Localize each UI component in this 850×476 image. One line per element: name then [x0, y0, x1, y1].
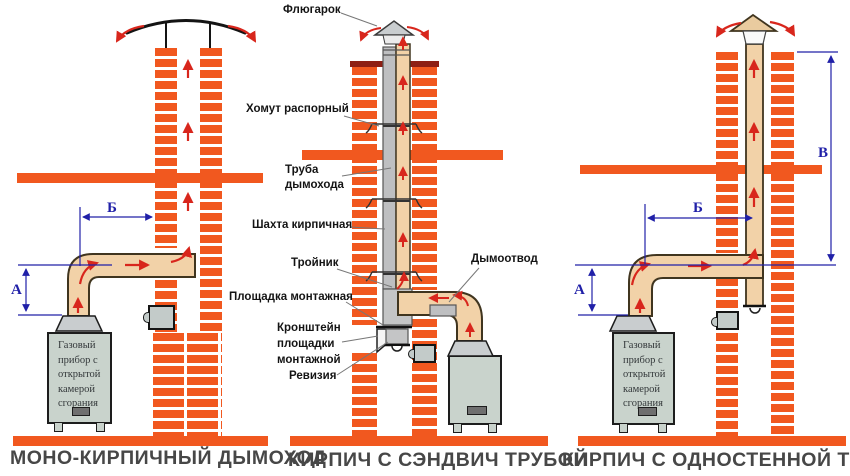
right-diagram-linework — [575, 15, 838, 331]
condensate-drain — [392, 346, 402, 351]
caption-right: КИРПИЧ С ОДНОСТЕННОЙ ТРУБОЙ — [562, 449, 850, 472]
dim-label-v-right: В — [818, 145, 828, 162]
boiler-flue-pipe — [68, 254, 195, 316]
label-truba: Труба дымохода — [285, 163, 344, 193]
boiler-flue-collar — [56, 316, 102, 331]
label-troynik: Тройник — [291, 256, 338, 271]
middle-diagram-linework — [337, 13, 493, 375]
label-ploshchadka: Площадка монтажная — [229, 290, 353, 305]
label-fluegarok: Флюгарок — [283, 3, 341, 18]
boiler-flue-collar — [610, 316, 656, 331]
label-khomut: Хомут распорный — [246, 102, 349, 117]
boiler-flue-collar — [448, 341, 493, 356]
label-kronshtein: Кронштейн площадки монтажной — [277, 320, 341, 368]
label-dymootvod: Дымоотвод — [471, 252, 538, 267]
dim-label-b-left: Б — [107, 200, 117, 217]
cowl-neck — [743, 31, 766, 44]
chimney-arc-cap-icon — [127, 21, 245, 49]
dim-label-a-left: А — [11, 282, 22, 299]
left-diagram-linework — [18, 21, 255, 332]
duct-connector — [430, 305, 456, 316]
revision-stub — [386, 329, 408, 344]
label-shahta: Шахта кирпичная — [252, 218, 352, 233]
caption-left: МОНО-КИРПИЧНЫЙ ДЫМОХОД — [10, 447, 270, 470]
cowl-neck — [383, 35, 405, 44]
diagram-linework — [0, 0, 850, 476]
condensate-drain — [750, 308, 760, 313]
chimney-schemes-diagram: Газовый прибор с открытой камерой сгоран… — [0, 0, 850, 476]
caption-middle: КИРПИЧ С СЭНДВИЧ ТРУБОЙ — [288, 449, 538, 472]
label-reviziya: Ревизия — [289, 369, 336, 384]
dim-label-b-right: Б — [693, 200, 703, 217]
dim-label-a-right: А — [574, 282, 585, 299]
